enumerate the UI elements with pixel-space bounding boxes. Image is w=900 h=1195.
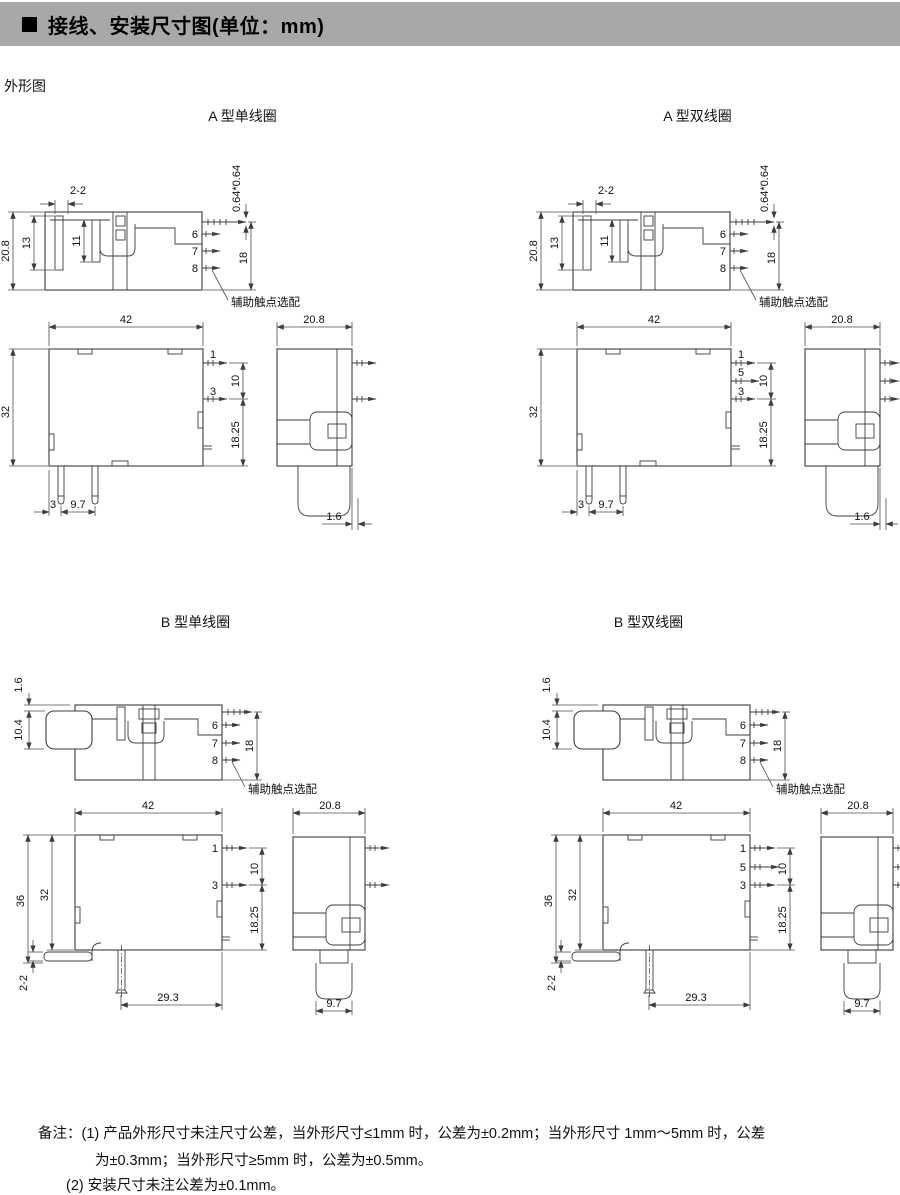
dim-11: 11	[599, 235, 611, 246]
dim-1-6: 1.6	[326, 511, 341, 523]
top-view: 6 7 8 20.8 13 11 2-2 0.64*0.64 18 辅助触点选配	[528, 165, 828, 309]
dim-pin-cross: 0.64*0.64	[759, 165, 771, 212]
dim-2-2: 2-2	[70, 185, 86, 197]
pin-6-label: 6	[740, 720, 746, 732]
dim-3: 3	[50, 499, 56, 511]
pin-8-label: 8	[740, 755, 746, 767]
dim-10-4: 10.4	[541, 719, 553, 740]
pin-7-label: 7	[740, 738, 746, 750]
dim-9-7-plug: 9.7	[854, 998, 869, 1010]
dim-9-7: 9.7	[70, 499, 85, 511]
diagram-a-single: 6 7 8 20.8 13 11 2-2 0.64*0.64 18 辅助触点选配…	[0, 158, 400, 540]
dim-29-3: 29.3	[685, 992, 706, 1004]
note-2-number: (2)	[66, 1178, 84, 1194]
dim-1-6-step: 1.6	[541, 677, 553, 692]
dim-10: 10	[249, 863, 261, 875]
pin-6-label: 6	[212, 720, 218, 732]
dim-18-25: 18.25	[777, 906, 789, 934]
pin-6-label: 6	[720, 229, 726, 241]
dim-2-2: 2-2	[598, 185, 614, 197]
note-2-line: (2) 安装尺寸未注公差为±0.1mm。	[66, 1174, 285, 1195]
dim-20-8-side: 20.8	[319, 800, 340, 812]
dim-9-7: 9.7	[598, 499, 613, 511]
pin-7-label: 7	[720, 246, 726, 258]
pin-8-label: 8	[192, 263, 198, 275]
aux-contact-note: 辅助触点选配	[759, 295, 828, 309]
dim-20-8: 20.8	[0, 240, 12, 261]
pin-3-label: 3	[740, 880, 746, 892]
dim-42: 42	[670, 800, 682, 812]
section-title: 接线、安装尺寸图(单位：mm)	[48, 10, 324, 39]
dim-2-2-bracket: 2-2	[546, 975, 558, 991]
top-view: 6 7 8 20.8 13 11 2-2 0.64*0.64 18 辅助触点选配	[0, 165, 300, 309]
title-a-single: A 型单线圈	[150, 106, 335, 126]
dim-20-8-side: 20.8	[303, 314, 324, 326]
dim-18-25: 18.25	[249, 906, 261, 934]
side-view: 20.8 9.7	[293, 800, 389, 1015]
pin-3-label: 3	[212, 880, 218, 892]
pin-7-label: 7	[212, 738, 218, 750]
top-view: 6 7 8 1.6 10.4 18 辅助触点选配	[13, 677, 317, 796]
dim-42: 42	[142, 800, 154, 812]
dim-42: 42	[648, 314, 660, 326]
pin-3-label: 3	[738, 386, 744, 398]
b-double-drawing: 6 7 8 1.6 10.4 18 辅助触点选配 42 36 32 1 5	[528, 655, 900, 1023]
a-double-drawing: 6 7 8 20.8 13 11 2-2 0.64*0.64 18 辅助触点选配…	[528, 158, 900, 540]
note-1-line-1: 备注：(1) 产品外形尺寸未注尺寸公差，当外形尺寸≤1mm 时，公差为±0.2m…	[38, 1122, 765, 1143]
title-b-double: B 型双线圈	[556, 612, 741, 632]
diagram-a-double: 6 7 8 20.8 13 11 2-2 0.64*0.64 18 辅助触点选配…	[528, 158, 900, 540]
pin-6-label: 6	[192, 229, 198, 241]
section-header: 接线、安装尺寸图(单位：mm)	[0, 2, 900, 46]
dim-18: 18	[766, 252, 778, 264]
dim-pin-cross: 0.64*0.64	[231, 165, 243, 212]
dim-11: 11	[71, 235, 83, 246]
front-view: 42 36 32 1 3 10 18.25 2-2 29.3	[15, 800, 267, 1010]
notes-label: 备注：	[38, 1126, 82, 1142]
note-1-text-a: 产品外形尺寸未注尺寸公差，当外形尺寸≤1mm 时，公差为±0.2mm；当外形尺寸…	[103, 1126, 765, 1142]
dim-3: 3	[578, 499, 584, 511]
dim-10-4: 10.4	[13, 719, 25, 740]
aux-contact-note: 辅助触点选配	[248, 782, 317, 796]
outline-figure-label: 外形图	[4, 76, 46, 96]
dim-2-2-bracket: 2-2	[18, 975, 30, 991]
dim-32: 32	[567, 889, 579, 901]
dim-42: 42	[120, 314, 132, 326]
aux-contact-note: 辅助触点选配	[231, 295, 300, 309]
dim-9-7-plug: 9.7	[326, 998, 341, 1010]
title-b-single: B 型单线圈	[103, 612, 288, 632]
pin-1-label: 1	[210, 349, 216, 361]
side-view: 20.8 9.7	[821, 800, 900, 1015]
dim-10: 10	[230, 375, 242, 387]
dim-1-6-step: 1.6	[13, 677, 25, 692]
diagram-b-single: 6 7 8 1.6 10.4 18 辅助触点选配 42 36 32 1 3	[0, 655, 400, 1023]
note-1-text-b: 为±0.3mm；当外形尺寸≥5mm 时，公差为±0.5mm。	[95, 1153, 432, 1169]
dim-18-25: 18.25	[758, 421, 770, 449]
dim-13: 13	[549, 237, 561, 249]
side-view: 20.8 1.6	[277, 314, 376, 530]
pin-7-label: 7	[192, 246, 198, 258]
dim-32: 32	[39, 889, 51, 901]
pin-8-label: 8	[212, 755, 218, 767]
title-a-double: A 型双线圈	[605, 106, 790, 126]
pin-3-label: 3	[210, 386, 216, 398]
dim-18: 18	[244, 740, 256, 752]
dim-18: 18	[772, 740, 784, 752]
pin-1-label: 1	[738, 349, 744, 361]
dim-13: 13	[21, 237, 33, 249]
dim-1-6: 1.6	[854, 511, 869, 523]
dim-18-25: 18.25	[230, 421, 242, 449]
front-view: 42 36 32 1 5 3 10 18.25 2-2	[543, 800, 795, 1010]
dim-10: 10	[758, 375, 770, 387]
aux-contact-note: 辅助触点选配	[776, 782, 845, 796]
dim-18: 18	[238, 252, 250, 264]
diagram-b-double: 6 7 8 1.6 10.4 18 辅助触点选配 42 36 32 1 5	[528, 655, 900, 1023]
dim-36: 36	[543, 895, 555, 907]
dim-32: 32	[0, 406, 12, 418]
pin-5-label: 5	[738, 367, 744, 379]
section-bullet-icon	[22, 17, 37, 32]
dim-20-8-side: 20.8	[847, 800, 868, 812]
note-2-text: 安装尺寸未注公差为±0.1mm。	[88, 1178, 285, 1194]
dim-32: 32	[528, 406, 540, 418]
dim-29-3: 29.3	[157, 992, 178, 1004]
note-1-number: (1)	[82, 1126, 100, 1142]
front-view: 42 32 1 3 10 18.25 3 9.7	[0, 314, 248, 516]
front-view: 42 32 1 5 3 10 18.25 3 9.7	[528, 314, 776, 516]
note-1-line-2: 为±0.3mm；当外形尺寸≥5mm 时，公差为±0.5mm。	[95, 1149, 432, 1170]
dim-36: 36	[15, 895, 27, 907]
b-single-drawing: 6 7 8 1.6 10.4 18 辅助触点选配 42 36 32 1 3	[0, 655, 400, 1023]
side-view: 20.8 1.6	[805, 314, 899, 530]
top-view: 6 7 8 1.6 10.4 18 辅助触点选配	[541, 677, 845, 796]
pin-5-label: 5	[740, 862, 746, 874]
dim-20-8-side: 20.8	[831, 314, 852, 326]
pin-8-label: 8	[720, 263, 726, 275]
dim-20-8: 20.8	[528, 240, 540, 261]
pin-1-label: 1	[212, 843, 218, 855]
pin-1-label: 1	[740, 843, 746, 855]
a-single-drawing: 6 7 8 20.8 13 11 2-2 0.64*0.64 18 辅助触点选配…	[0, 158, 400, 540]
dim-10: 10	[777, 863, 789, 875]
